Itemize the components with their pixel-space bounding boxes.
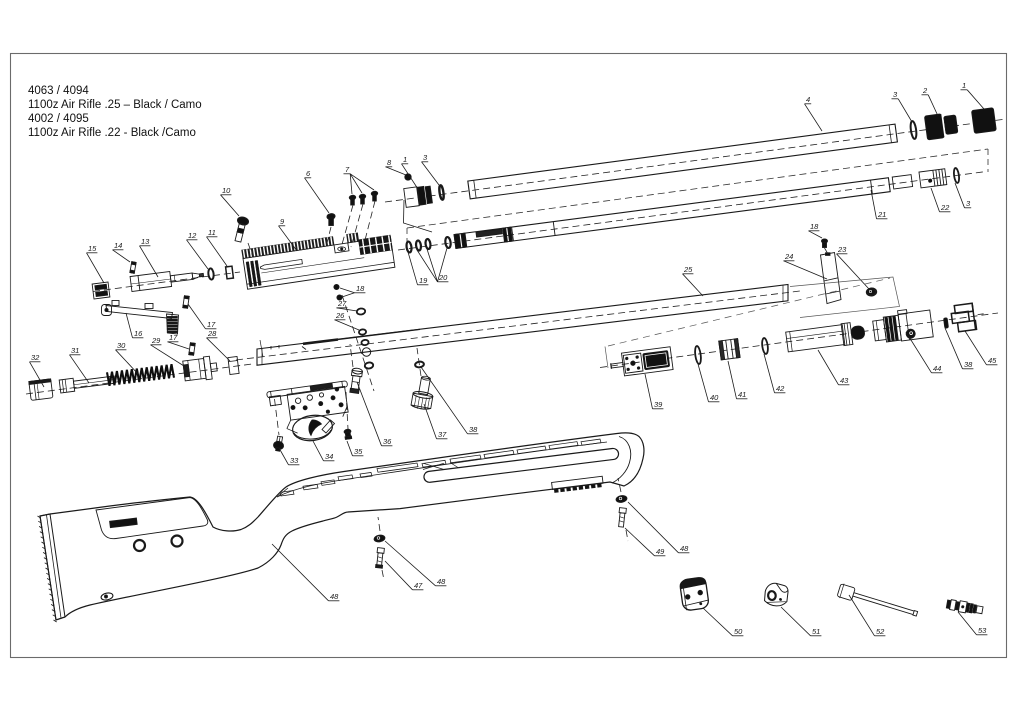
svg-text:51: 51 <box>812 627 820 636</box>
svg-text:17: 17 <box>207 320 216 329</box>
svg-text:32: 32 <box>31 353 40 362</box>
svg-text:13: 13 <box>141 237 150 246</box>
svg-text:23: 23 <box>837 245 847 254</box>
svg-text:44: 44 <box>933 364 941 373</box>
svg-text:26: 26 <box>335 311 345 320</box>
svg-text:47: 47 <box>414 581 423 590</box>
svg-text:12: 12 <box>188 231 197 240</box>
svg-text:49: 49 <box>656 547 665 556</box>
svg-text:1100z Air Rifle .25 – Black /: 1100z Air Rifle .25 – Black / Camo <box>28 99 202 111</box>
svg-text:45: 45 <box>988 356 997 365</box>
svg-text:38: 38 <box>964 360 973 369</box>
svg-text:4: 4 <box>806 95 810 104</box>
svg-text:11: 11 <box>208 228 216 237</box>
svg-text:48: 48 <box>680 544 689 553</box>
svg-text:19: 19 <box>419 276 428 285</box>
svg-text:43: 43 <box>840 376 849 385</box>
svg-text:31: 31 <box>71 346 79 355</box>
svg-text:42: 42 <box>776 384 785 393</box>
svg-text:37: 37 <box>438 430 447 439</box>
svg-text:30: 30 <box>117 341 126 350</box>
svg-text:17: 17 <box>169 333 178 342</box>
svg-text:1100z Air Rifle .22 - Black /C: 1100z Air Rifle .22 - Black /Camo <box>28 127 196 139</box>
svg-text:25: 25 <box>683 265 693 274</box>
svg-text:16: 16 <box>134 329 143 338</box>
svg-text:22: 22 <box>940 203 950 212</box>
svg-text:50: 50 <box>734 627 743 636</box>
svg-text:2: 2 <box>922 86 928 95</box>
svg-text:15: 15 <box>88 244 97 253</box>
svg-text:39: 39 <box>654 400 663 409</box>
svg-text:52: 52 <box>876 627 885 636</box>
svg-text:10: 10 <box>222 186 231 195</box>
svg-text:1: 1 <box>403 155 407 164</box>
svg-text:33: 33 <box>290 456 299 465</box>
svg-text:18: 18 <box>356 284 365 293</box>
svg-text:29: 29 <box>151 336 161 345</box>
svg-text:48: 48 <box>437 577 446 586</box>
svg-text:48: 48 <box>330 592 339 601</box>
svg-text:36: 36 <box>383 437 392 446</box>
svg-text:35: 35 <box>354 447 363 456</box>
svg-text:41: 41 <box>738 390 746 399</box>
svg-text:4063 / 4094: 4063 / 4094 <box>28 85 89 97</box>
svg-text:28: 28 <box>207 329 217 338</box>
svg-text:40: 40 <box>710 393 719 402</box>
svg-text:34: 34 <box>325 452 333 461</box>
svg-text:24: 24 <box>784 252 793 261</box>
svg-text:18: 18 <box>810 222 819 231</box>
svg-text:21: 21 <box>877 210 886 219</box>
svg-text:38: 38 <box>469 425 478 434</box>
svg-text:14: 14 <box>114 241 122 250</box>
svg-text:1: 1 <box>962 81 966 90</box>
svg-text:4002 / 4095: 4002 / 4095 <box>28 113 89 125</box>
svg-text:53: 53 <box>978 626 987 635</box>
